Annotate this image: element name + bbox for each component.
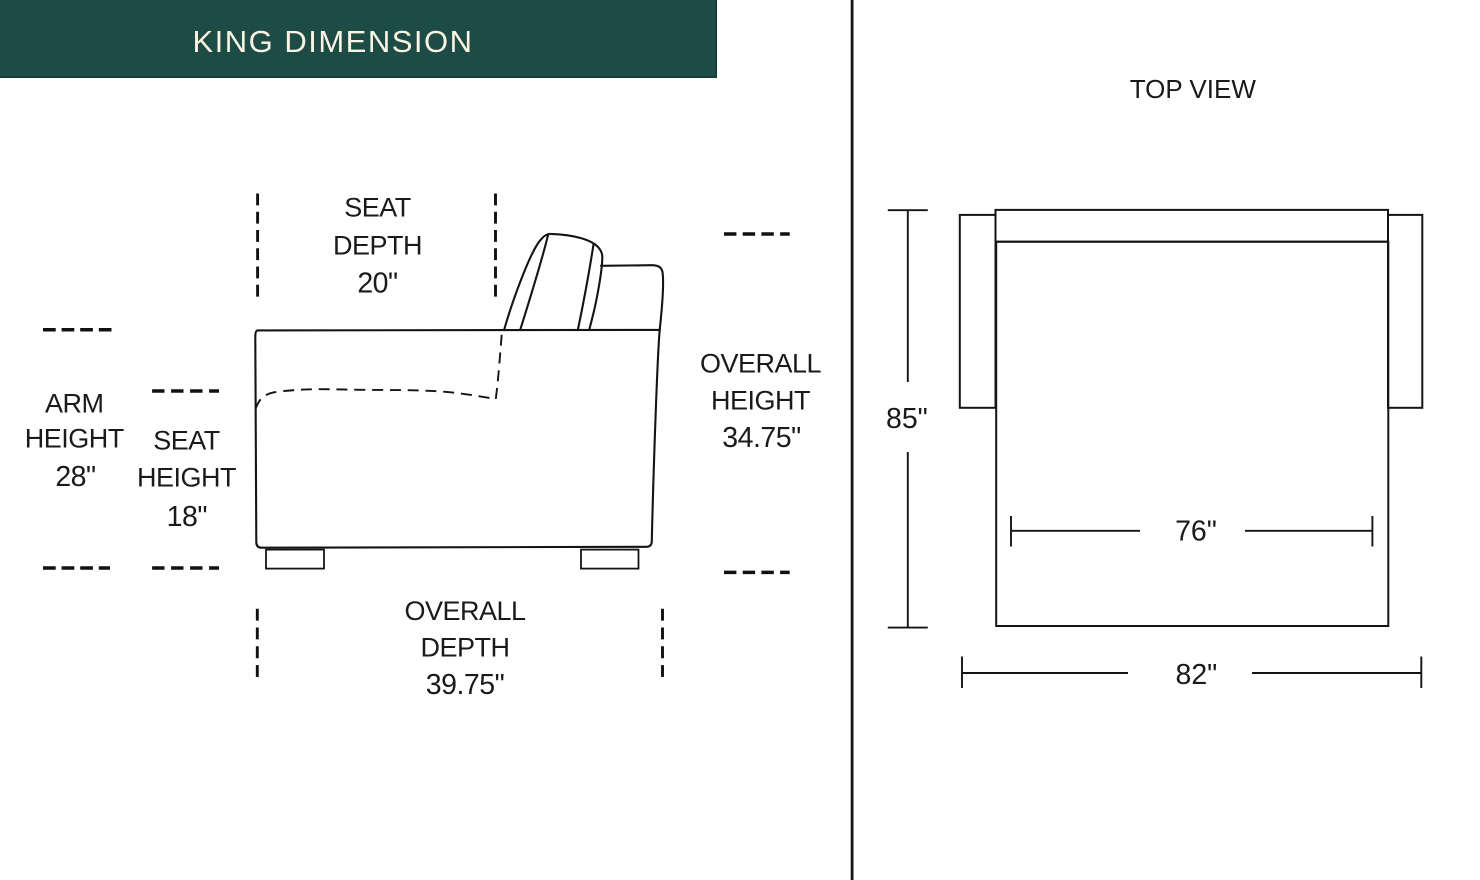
svg-text:OVERALL: OVERALL	[700, 349, 822, 379]
svg-text:34.75": 34.75"	[722, 422, 800, 454]
svg-text:HEIGHT: HEIGHT	[137, 462, 236, 492]
svg-text:85": 85"	[886, 403, 928, 435]
svg-text:28": 28"	[55, 461, 95, 493]
svg-text:DEPTH: DEPTH	[333, 231, 422, 261]
svg-text:HEIGHT: HEIGHT	[711, 386, 810, 416]
svg-text:ARM: ARM	[45, 388, 104, 418]
svg-text:DEPTH: DEPTH	[420, 632, 509, 662]
svg-text:OVERALL: OVERALL	[404, 596, 526, 626]
svg-text:KING DIMENSION: KING DIMENSION	[192, 24, 473, 59]
svg-text:82": 82"	[1175, 659, 1217, 691]
svg-text:20": 20"	[357, 267, 397, 299]
svg-text:18": 18"	[167, 501, 207, 533]
svg-text:39.75": 39.75"	[426, 669, 504, 701]
svg-text:SEAT: SEAT	[344, 192, 411, 222]
svg-text:HEIGHT: HEIGHT	[25, 424, 124, 454]
svg-text:SEAT: SEAT	[153, 425, 220, 455]
svg-text:76": 76"	[1175, 516, 1217, 548]
svg-text:TOP VIEW: TOP VIEW	[1130, 74, 1257, 104]
